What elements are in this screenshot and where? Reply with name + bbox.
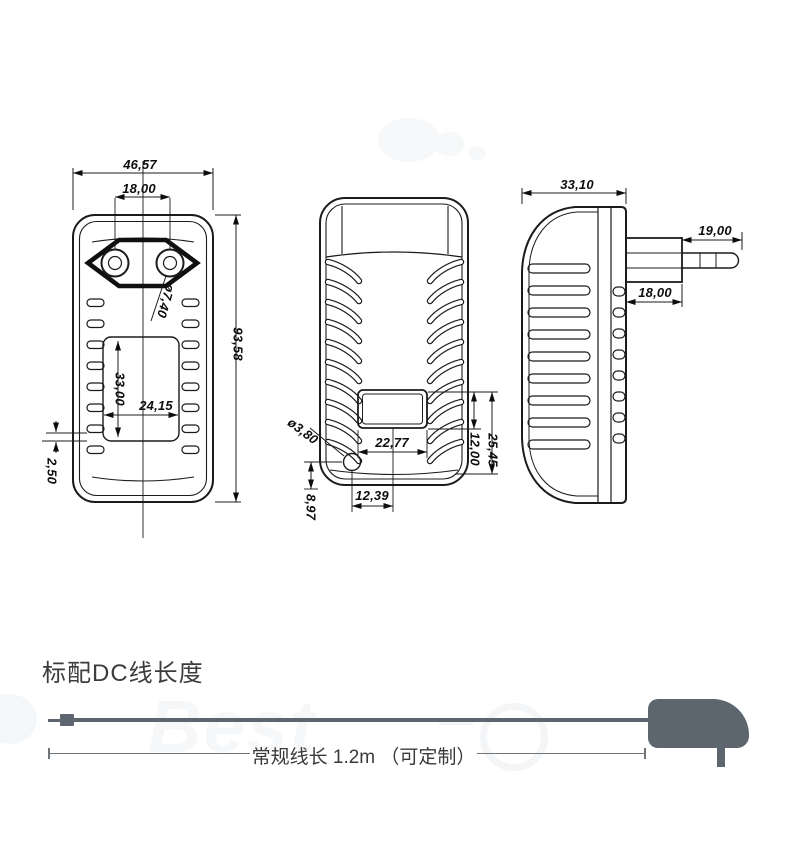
dc-cable [73, 718, 648, 722]
dim-label-width: 22,77 [374, 435, 409, 450]
plug-pin-hole-right [157, 250, 184, 277]
dc-connector-barrel [60, 714, 74, 726]
plug-pin [682, 253, 739, 268]
cable-length-label: 常规线长 1.2m （可定制） [250, 742, 477, 769]
plug-head [626, 238, 682, 282]
watermark-blob [0, 694, 37, 744]
product-spec-image: Best [0, 0, 790, 862]
cable-dim-line-right [477, 753, 645, 754]
cable-dim-tick-left [48, 748, 50, 759]
dim-front-height: 93,58 [231, 327, 246, 361]
dim-rib-gap: 2,50 [45, 457, 60, 485]
plug-socket-hexagon [88, 240, 197, 286]
dim-plug-head-depth: 18,00 [638, 285, 672, 300]
back-view: 22,77 ø3,80 12,39 8,97 12,00 25,45 [285, 198, 501, 521]
dim-window-width: 24,15 [138, 398, 173, 413]
watermark-logo-ring [480, 703, 548, 771]
dim-window-height: 33,00 [113, 372, 128, 406]
technical-drawing: 46,57 18,00 ø7,40 93,58 33,00 24,15 2,50 [0, 0, 790, 620]
cable-dim-tick-right [644, 748, 646, 759]
adapter-silhouette [648, 699, 749, 748]
plug-pin-hole-left [102, 250, 129, 277]
dim-label-offset: 25,45 [486, 432, 501, 467]
dim-hole-diameter: ø3,80 [285, 415, 322, 448]
dim-depth: 33,10 [560, 177, 594, 192]
dim-pin-length: 19,00 [698, 223, 732, 238]
cable-dim-line-left [48, 753, 250, 754]
rating-label [358, 390, 427, 428]
dim-hole-offset-x: 12,39 [355, 488, 389, 503]
front-view: 46,57 18,00 ø7,40 93,58 33,00 24,15 2,50 [42, 157, 246, 538]
side-view: 33,10 19,00 18,00 [522, 177, 742, 503]
dim-label-height: 12,00 [468, 432, 483, 466]
dim-pin-spacing: 18,00 [122, 181, 156, 196]
section-title: 标配DC线长度 [42, 653, 204, 688]
dim-front-width: 46,57 [122, 157, 157, 172]
adapter-silhouette-pin [717, 748, 725, 767]
dim-hole-offset-y: 8,97 [304, 494, 319, 521]
